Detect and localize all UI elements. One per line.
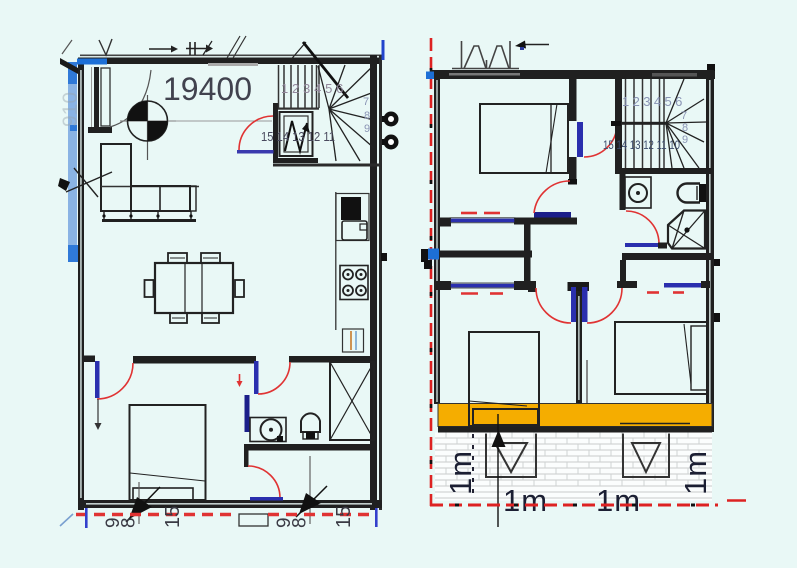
svg-text:15 14 13 12 11: 15 14 13 12 11	[261, 130, 335, 144]
svg-text:98: 98	[274, 512, 311, 528]
svg-text:1m: 1m	[503, 483, 548, 518]
svg-text:9: 9	[682, 134, 688, 146]
svg-text:19400: 19400	[163, 71, 252, 107]
svg-text:1m: 1m	[596, 483, 641, 518]
svg-text:123456: 123456	[281, 81, 347, 96]
svg-text:8: 8	[682, 122, 688, 134]
svg-text:123456: 123456	[622, 94, 686, 109]
svg-text:15 14 13 12 11 10: 15 14 13 12 11 10	[603, 138, 680, 152]
svg-text:9: 9	[364, 123, 370, 135]
svg-text:7: 7	[681, 110, 687, 122]
svg-text:15: 15	[162, 506, 184, 528]
svg-text:8: 8	[364, 110, 370, 122]
svg-text:15: 15	[333, 506, 355, 528]
svg-text:1m: 1m	[678, 450, 713, 495]
svg-text:98: 98	[103, 512, 140, 528]
svg-text:7: 7	[363, 96, 369, 108]
svg-text:910: 910	[59, 92, 82, 127]
svg-text:1m: 1m	[443, 450, 478, 495]
